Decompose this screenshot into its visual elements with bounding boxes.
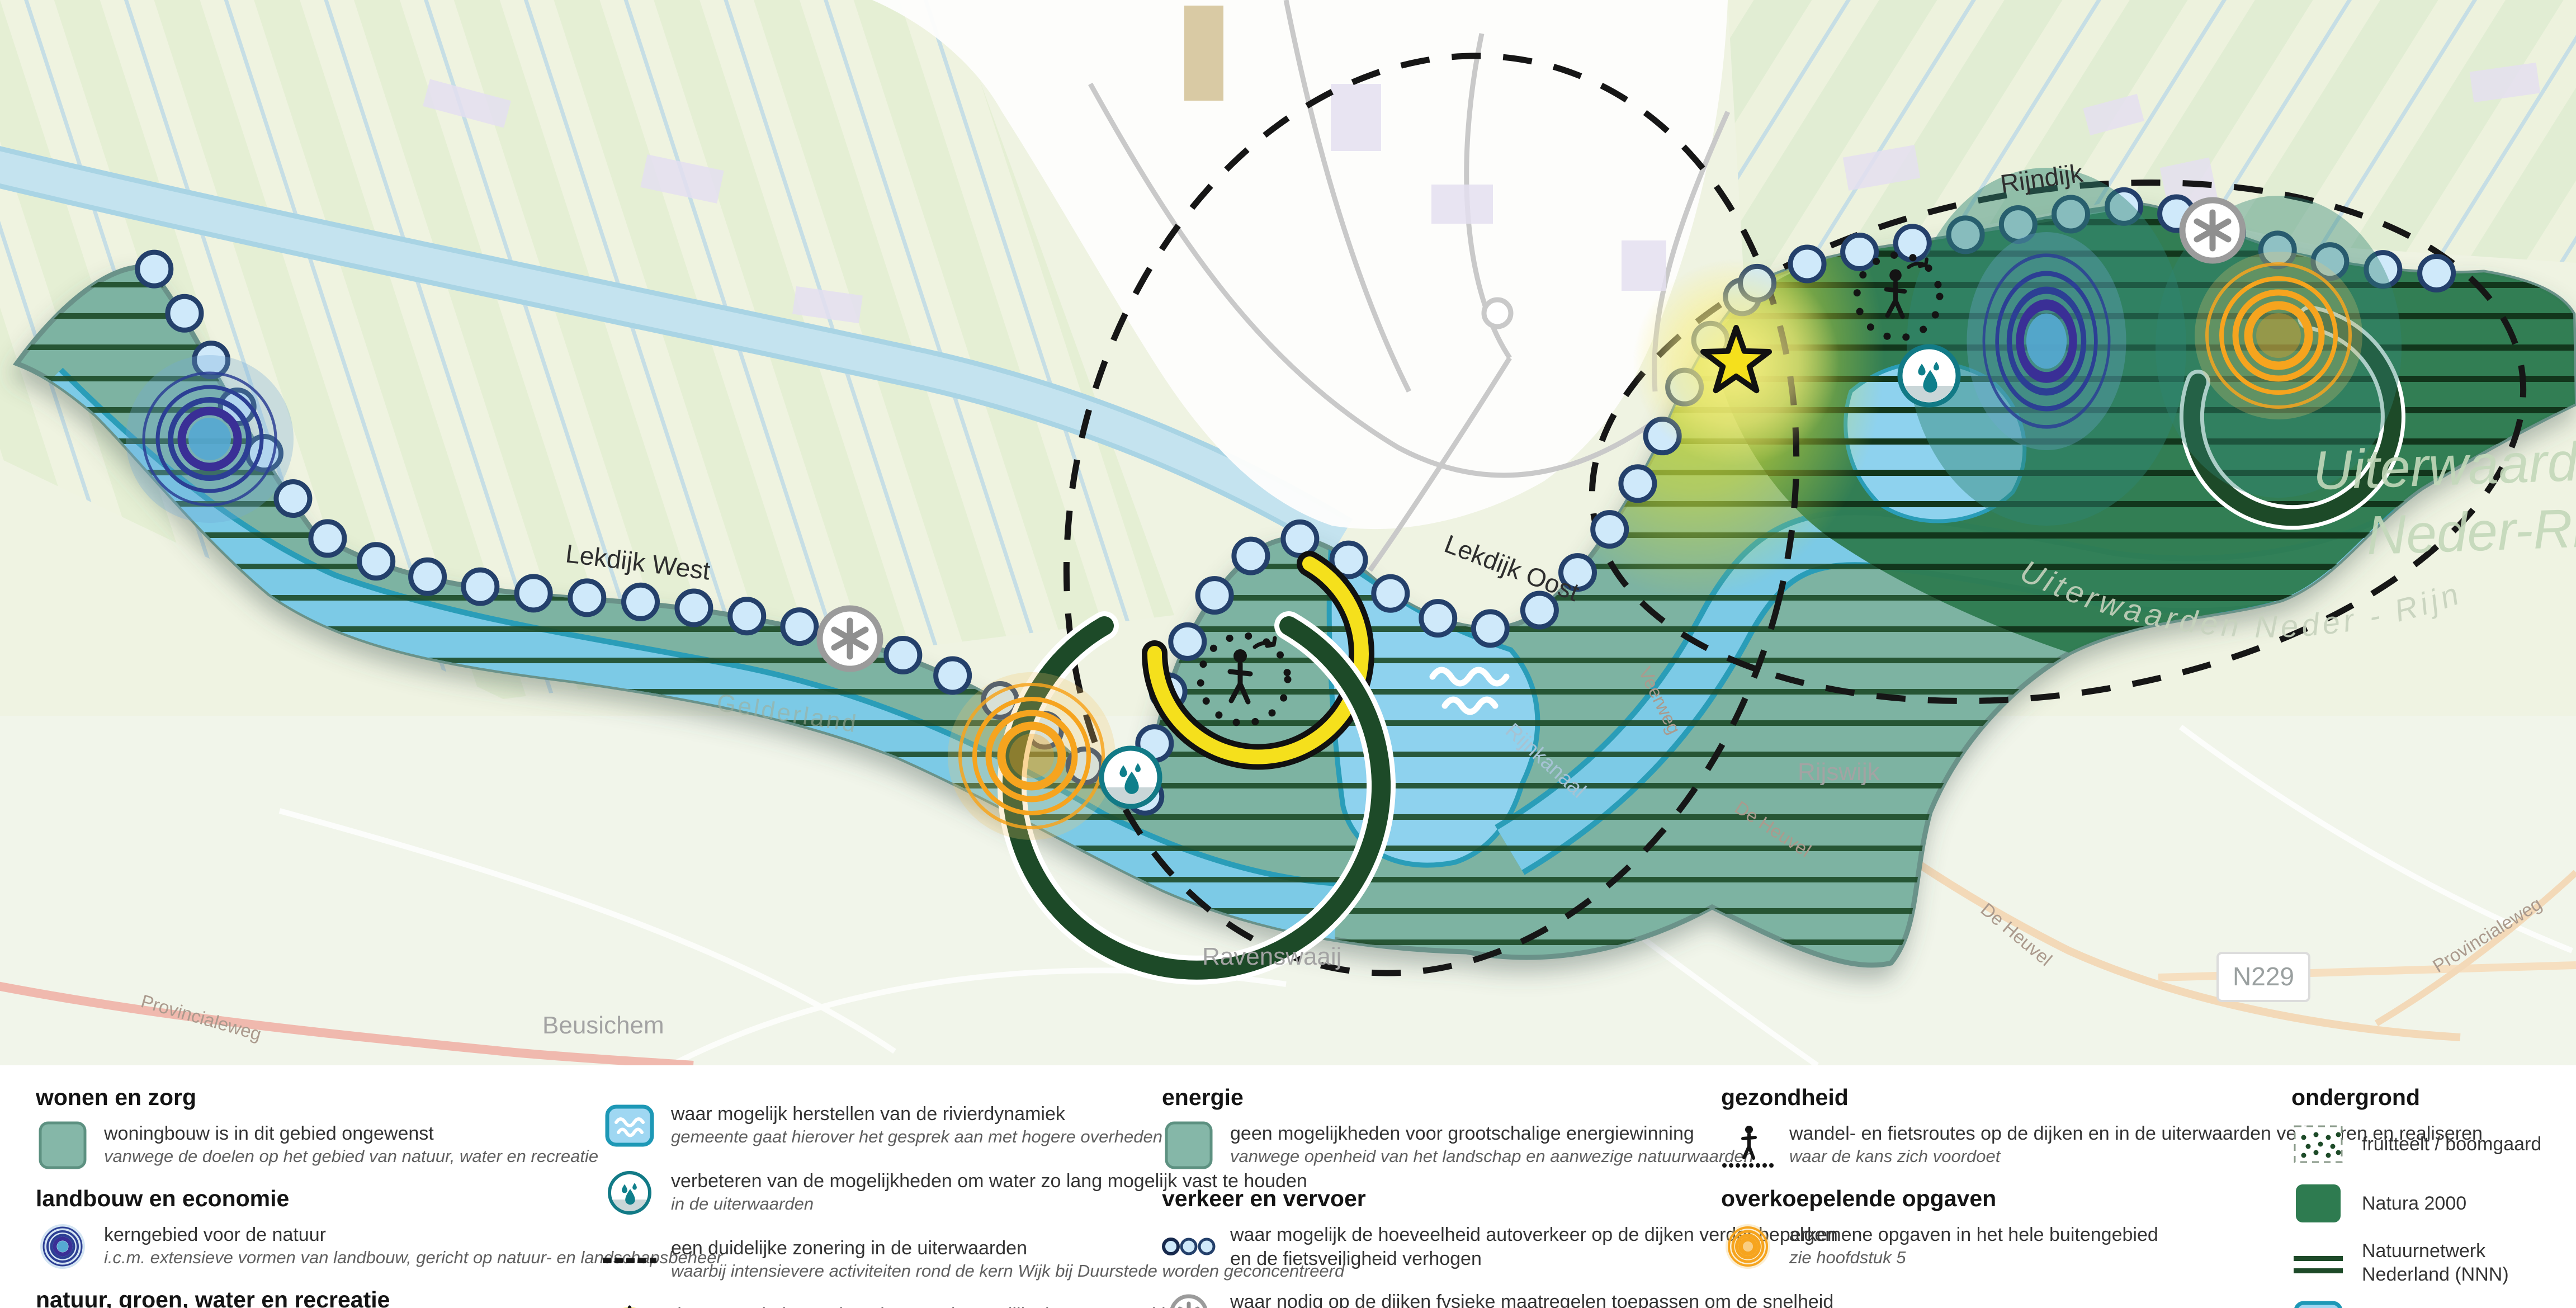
map-legend: wonen en zorg woningbouw is in dit gebie… (0, 1065, 2576, 1308)
legend-item-label: Natura 2000 (2362, 1192, 2466, 1216)
legend-item: rivieren en kanalen (2291, 1296, 2576, 1308)
legend-item: waar nodig op de dijken fysieke maatrege… (1162, 1287, 1838, 1308)
nature-core-rings-west (126, 355, 294, 523)
legend-item-label: fruitteelt / boomgaard (2362, 1132, 2541, 1156)
walking-route-icon (1721, 1118, 1775, 1172)
dike-bead (1621, 467, 1655, 500)
dike-bead (1198, 579, 1231, 612)
dike-bead (1593, 513, 1627, 546)
dike-bead (1171, 625, 1204, 658)
dike-bead (1374, 577, 1407, 610)
dike-bead (936, 659, 970, 692)
legend-item-label: waar nodig op de dijken fysieke maatrege… (1230, 1290, 1833, 1308)
dike-bead (1234, 539, 1268, 573)
roundabout (1484, 300, 1511, 327)
dike-bead (138, 252, 171, 286)
dike-bead (276, 482, 310, 516)
teal-area-swatch (36, 1118, 89, 1172)
label-uiterwaarden-line1: Uiterwaarden (2312, 428, 2576, 501)
legend-item-label: waar mogelijk herstellen van de rivierdy… (671, 1102, 1162, 1126)
general-tasks-rings-icon (1721, 1220, 1775, 1273)
dike-bead (783, 610, 816, 644)
natura2000-swatch (2291, 1177, 2345, 1230)
legend-item-label: Natuurnetwerk Nederland (NNN) (2362, 1239, 2576, 1287)
label-beusichem: Beusichem (542, 1012, 664, 1039)
orchard-swatch (2291, 1117, 2345, 1171)
label-uiterwaarden-line2: Neder-Rijn (2366, 495, 2576, 566)
general-tasks-rings-east (2195, 252, 2362, 419)
n229-badge: N229 (2218, 953, 2309, 1001)
legend-item-sub: zie hoofdstuk 5 (1789, 1247, 2158, 1269)
teal-area-swatch (1162, 1118, 1216, 1172)
nature-core-rings-east (1967, 232, 2126, 450)
legend-item-sub: vanwege openheid van het landschap en aa… (1230, 1146, 1753, 1168)
dike-beads-icon (1162, 1220, 1216, 1273)
dike-bead (886, 638, 920, 672)
dike-bead (464, 570, 497, 603)
legend-item-label: geen mogelijkheden voor grootschalige en… (1230, 1122, 1753, 1146)
dike-bead (360, 545, 393, 578)
label-ravenswaaij: Ravenswaaij (1202, 943, 1341, 970)
traffic-calming-icon-east (2182, 200, 2243, 261)
dike-bead (311, 522, 344, 555)
dike-bead (730, 599, 764, 633)
map-canvas: Lekdijk West Lekdijk Oost Rijndijk Gelde… (0, 0, 2576, 1065)
legend-column-5: ondergrond fruitteelt / boomgaard Natura… (2291, 1084, 2576, 1308)
label-rijswijk: Rijswijk (1798, 758, 1880, 786)
dike-bead (411, 560, 445, 593)
legend-section-title: ondergrond (2291, 1084, 2576, 1111)
dike-bead (517, 577, 550, 610)
legend-item: fruitteelt / boomgaard (2291, 1118, 2576, 1170)
dike-bead (1790, 247, 1824, 281)
traffic-calming-icon-west (820, 608, 880, 669)
traffic-calming-icon (1162, 1287, 1216, 1308)
legend-item-sub: gemeente gaat hierover het gesprek aan m… (671, 1126, 1162, 1148)
dike-bead (677, 591, 711, 625)
dike-bead (168, 296, 201, 330)
dike-bead (1473, 612, 1507, 645)
water-retention-icon-east (1900, 347, 1958, 406)
nature-core-rings-icon (36, 1220, 89, 1273)
legend-item: Natura 2000 (2291, 1178, 2576, 1229)
dike-bead (624, 585, 658, 618)
legend-item: Natuurnetwerk Nederland (NNN) (2291, 1237, 2576, 1288)
dike-bead (1421, 602, 1455, 635)
legend-item-label: woningbouw is in dit gebied ongewenst (104, 1122, 598, 1146)
zoning-dash-icon (603, 1233, 656, 1287)
nnn-lines-icon (2291, 1236, 2345, 1290)
dike-bead (1843, 235, 1877, 269)
day-recreation-star-icon (603, 1300, 656, 1308)
dike-bead (570, 581, 604, 615)
legend-item-sub: vanwege de doelen op het gebied van natu… (104, 1146, 598, 1168)
water-retention-icon-west (1102, 748, 1160, 808)
general-tasks-rings-west (948, 672, 1116, 840)
label-n229: N229 (2233, 962, 2294, 991)
dike-bead (2420, 256, 2454, 290)
structuurvisie-map-page: Lekdijk West Lekdijk Oost Rijndijk Gelde… (0, 0, 2576, 1308)
river-dynamics-swatch (603, 1099, 656, 1153)
rivers-swatch (2291, 1295, 2345, 1308)
dike-bead (1283, 522, 1317, 555)
lock-structure (1184, 6, 1223, 101)
water-retention-icon (603, 1166, 656, 1220)
legend-item-label: algemene opgaven in het hele buitengebie… (1789, 1223, 2158, 1247)
